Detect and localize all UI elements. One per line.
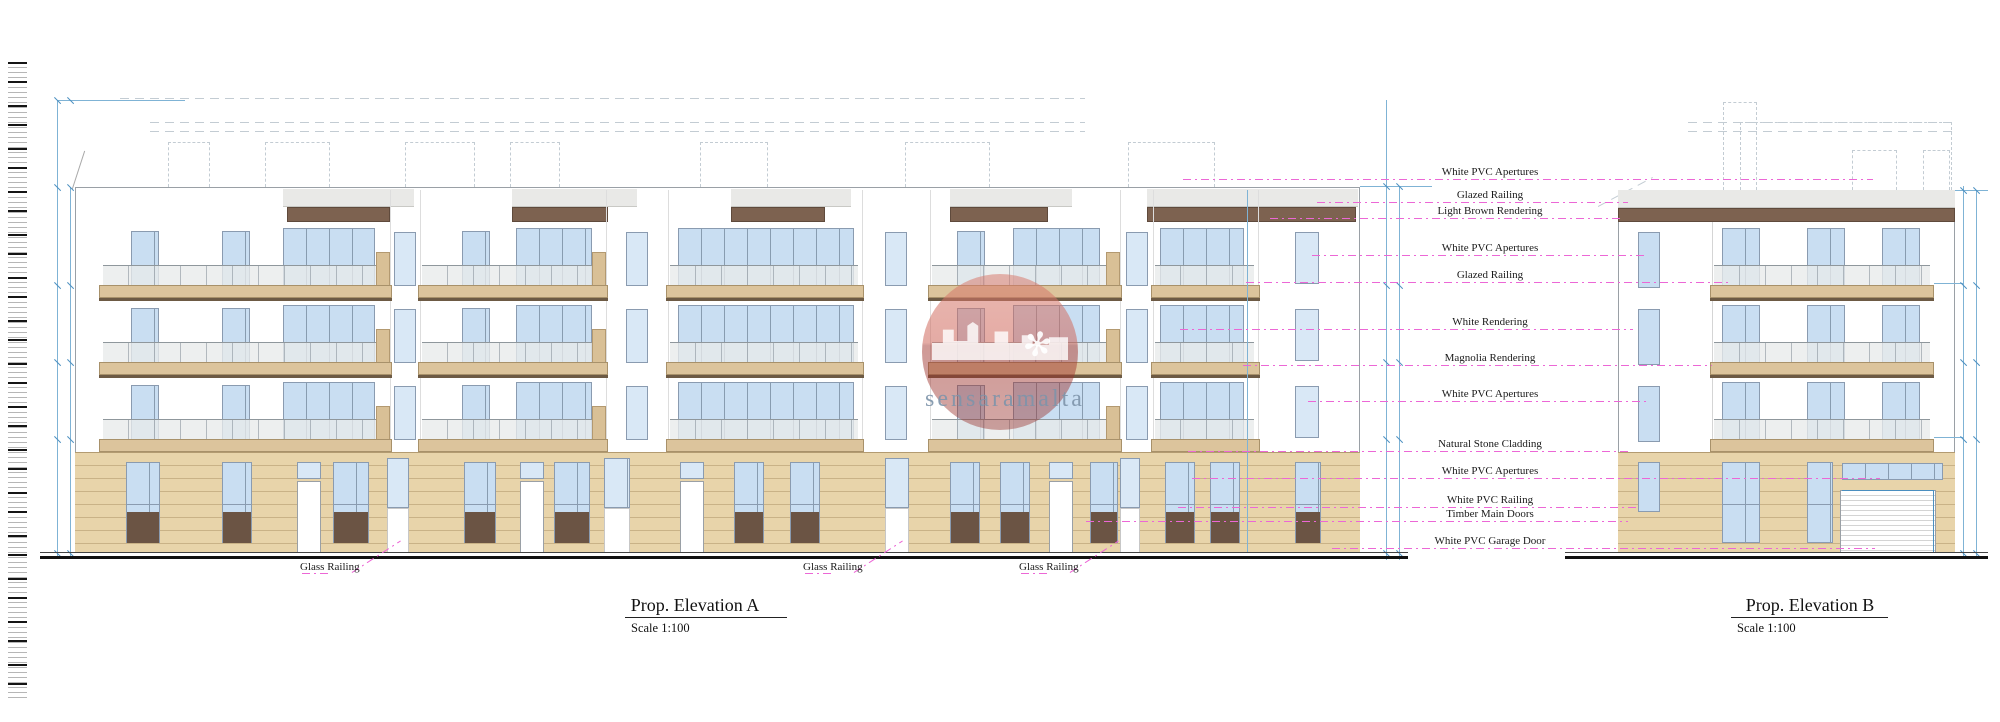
window-transom [950, 504, 980, 505]
annotation-label: White Rendering [1407, 316, 1573, 329]
leader-line [1317, 202, 1628, 203]
dimension-line-horizontal [1934, 283, 1963, 284]
window-stairwell [626, 232, 648, 286]
leader-line [1243, 365, 1712, 366]
stair-window [604, 458, 630, 508]
roof-structure-dashed-outline [905, 142, 990, 187]
leader-line [1188, 451, 1628, 452]
window-small [1638, 309, 1660, 365]
glass-railing-panel [1296, 512, 1320, 543]
window-transom [1295, 504, 1321, 505]
balcony-slab-shadow [99, 298, 392, 301]
window-transom [790, 504, 820, 505]
balcony-glazed-railing [422, 342, 592, 362]
balcony-slab-shadow [666, 298, 864, 301]
window-small [1295, 309, 1319, 361]
balcony-glazed-railing [103, 342, 376, 362]
parapet-gray-band [731, 189, 851, 207]
balcony-slab-shadow [418, 298, 608, 301]
balcony-glazed-railing [670, 419, 858, 439]
balcony-slab-shadow [666, 375, 864, 378]
elevation-b-scale: Scale 1:100 [1737, 621, 1857, 636]
garage-dimension-line [1933, 490, 1934, 553]
stair-panel [604, 508, 630, 553]
survey-ruler-strip [8, 62, 27, 702]
light-brown-rendering-band [287, 207, 390, 222]
annotation-label: White PVC Apertures [1407, 242, 1573, 255]
watermark-text: sensaramalta [925, 386, 1077, 410]
leader-line [1246, 282, 1730, 283]
parapet-gray-band [283, 189, 414, 207]
glass-railing-panel [1166, 512, 1194, 543]
annotation-label: Light Brown Rendering [1407, 205, 1573, 218]
dimension-line-horizontal [57, 100, 185, 101]
window-transom [1210, 504, 1240, 505]
timber-main-door [680, 481, 704, 553]
roof-structure-dashed-outline [168, 142, 210, 187]
garage-dimension-line [1842, 490, 1933, 491]
ground-window [1638, 462, 1660, 512]
balcony-slab [418, 439, 608, 452]
ground-line [1565, 552, 1988, 553]
facade-joint-line [862, 190, 863, 452]
glass-railing-panel [735, 512, 763, 543]
balcony-slab-shadow [1710, 298, 1934, 301]
window-transom [554, 504, 590, 505]
window-stairwell [1126, 386, 1148, 440]
watermark-pinwheel-icon: ✻ [1013, 322, 1062, 371]
stair-window [387, 458, 409, 508]
elevation-a-title: Prop. Elevation A [615, 595, 775, 615]
timber-main-door [297, 481, 321, 553]
window-small [1638, 232, 1660, 288]
balcony-glazed-railing [1714, 419, 1930, 439]
balcony-slab-shadow [1710, 375, 1934, 378]
leader-line [1308, 401, 1648, 402]
window-stairwell [885, 309, 907, 363]
light-brown-rendering-band [1618, 208, 1955, 222]
elevation-b-title: Prop. Elevation B [1727, 595, 1893, 615]
balcony-slab [99, 362, 392, 375]
window-transom [222, 504, 252, 505]
stair-panel [885, 508, 909, 553]
window-stairwell [885, 232, 907, 286]
glass-railing-panel [791, 512, 819, 543]
facade-joint-line [1258, 190, 1259, 452]
door-transom-window [297, 462, 321, 479]
stair-window [1120, 458, 1140, 508]
roof-structure-dashed-outline [1923, 150, 1950, 190]
facade-joint-line [420, 190, 421, 452]
annotation-label: Magnolia Rendering [1407, 352, 1573, 365]
leader-line [1332, 548, 1875, 549]
dimension-line-horizontal [1955, 190, 1988, 191]
elevation-a-scale: Scale 1:100 [631, 621, 751, 636]
balcony-slab [666, 439, 864, 452]
window-transom [1090, 504, 1118, 505]
parapet-gray-band [950, 189, 1072, 207]
ground-window [1722, 462, 1760, 543]
light-brown-rendering-band [731, 207, 825, 222]
facade-joint-line [668, 190, 669, 452]
annotation-label: White PVC Railing [1407, 494, 1573, 507]
annotation-label: Natural Stone Cladding [1407, 438, 1573, 451]
glass-railing-panel [223, 512, 251, 543]
leader-line [1183, 179, 1873, 180]
balcony-slab [1710, 439, 1934, 452]
window-stairwell [885, 386, 907, 440]
roof-structure-dashed-outline [700, 142, 768, 187]
glass-railing-panel [555, 512, 589, 543]
annotation-label: White PVC Apertures [1407, 388, 1573, 401]
ground-line [1565, 556, 1988, 559]
dimension-line-horizontal [1360, 186, 1432, 187]
dimension-line-vertical [1963, 186, 1964, 558]
roof-structure-dashed-outline [510, 142, 560, 187]
balcony-slab [1151, 362, 1260, 375]
parapet-gray-band [512, 189, 637, 207]
balcony-slab-shadow [1151, 298, 1260, 301]
glass-railing-panel [465, 512, 495, 543]
balcony-slab-shadow [99, 375, 392, 378]
roof-structure-dashed-outline [265, 142, 330, 187]
balcony-slab [1710, 362, 1934, 375]
window-small [1295, 386, 1319, 438]
glass-railing-panel [1001, 512, 1029, 543]
window-transom [1807, 504, 1833, 505]
glass-railing-panel [334, 512, 368, 543]
balcony-slab [928, 439, 1122, 452]
leader-line [1312, 255, 1645, 256]
balcony-slab [418, 285, 608, 298]
balcony-slab [666, 285, 864, 298]
balcony-slab [666, 362, 864, 375]
balcony-glazed-railing [103, 419, 376, 439]
annotation-label: Glazed Railing [1407, 269, 1573, 282]
window-transom [1000, 504, 1030, 505]
window-transom [1165, 504, 1195, 505]
facade-corner-line [72, 151, 85, 189]
balcony-glazed-railing [1714, 265, 1930, 285]
balcony-slab [1710, 285, 1934, 298]
dimension-line-vertical [1976, 190, 1977, 558]
leader-line [1086, 521, 1628, 522]
window-stairwell [1126, 232, 1148, 286]
balcony-glazed-railing [1155, 342, 1254, 362]
glass-railing-panel [951, 512, 979, 543]
glass-railing-label: Glass Railing [803, 561, 861, 574]
dimension-line-vertical [1399, 186, 1400, 560]
balcony-slab-shadow [418, 375, 608, 378]
annotation-label: White PVC Garage Door [1407, 535, 1573, 548]
facade-joint-line [606, 190, 607, 452]
facade-joint-line [390, 190, 391, 452]
annotation-label: Timber Main Doors [1407, 508, 1573, 521]
roof-structure-dashed-outline [1852, 150, 1897, 190]
facade-joint-line [1120, 190, 1121, 452]
window-transom [464, 504, 496, 505]
window-stairwell [394, 309, 416, 363]
leader-line [1270, 218, 1620, 219]
window-stairwell [394, 232, 416, 286]
facade-joint-line [1712, 222, 1713, 452]
roof-dashed-line [150, 131, 1085, 132]
title-underline [1731, 617, 1888, 618]
window-small [1638, 386, 1660, 442]
annotation-label: White PVC Apertures [1407, 166, 1573, 179]
glass-railing-label: Glass Railing [1019, 561, 1077, 574]
window-transom [126, 504, 160, 505]
balcony-slab [418, 362, 608, 375]
balcony-glazed-railing [670, 265, 858, 285]
timber-main-door [1049, 481, 1073, 553]
annotation-label: White PVC Apertures [1407, 465, 1573, 478]
light-brown-rendering-band [512, 207, 608, 222]
dimension-line-vertical [57, 100, 58, 558]
stair-panel [1120, 508, 1140, 553]
door-transom-window [520, 462, 544, 479]
roof-dashed-line [120, 98, 1085, 99]
balcony-glazed-railing [103, 265, 376, 285]
glass-railing-panel [1211, 512, 1239, 543]
roof-structure-dashed-outline [405, 142, 475, 187]
balcony-glazed-railing [1714, 342, 1930, 362]
balcony-glazed-railing [670, 342, 858, 362]
parapet-gray-band [1618, 190, 1955, 208]
balcony-slab [99, 439, 392, 452]
ground-line [40, 556, 1408, 559]
leader-line [1192, 478, 1880, 479]
balcony-slab [99, 285, 392, 298]
window-transom [333, 504, 369, 505]
facade-joint-line [1153, 190, 1154, 452]
dimension-line-vertical [70, 187, 71, 558]
window-stairwell [394, 386, 416, 440]
glass-railing-label: Glass Railing [300, 561, 358, 574]
window-stairwell [1126, 309, 1148, 363]
dimension-line-vertical [1247, 190, 1248, 553]
leader-line [1180, 329, 1633, 330]
ground-window [1807, 462, 1833, 543]
balcony-glazed-railing [422, 419, 592, 439]
parapet-gray-band [1147, 189, 1358, 207]
white-pvc-garage-door [1840, 490, 1936, 553]
balcony-glazed-railing [422, 265, 592, 285]
window-small [1295, 232, 1319, 284]
annotation-label: Glazed Railing [1407, 189, 1573, 202]
door-transom-window [1049, 462, 1073, 479]
elevation-drawing-canvas: ✻sensaramaltaWhite PVC AperturesGlazed R… [0, 0, 2000, 722]
timber-main-door [520, 481, 544, 553]
glass-railing-panel [1091, 512, 1117, 543]
title-underline [625, 617, 787, 618]
balcony-glazed-railing [1155, 419, 1254, 439]
glass-railing-panel [127, 512, 159, 543]
light-brown-rendering-band [1147, 207, 1356, 222]
window-transom [1722, 504, 1760, 505]
balcony-glazed-railing [1155, 265, 1254, 285]
dimension-line-horizontal [1934, 437, 1963, 438]
window-stairwell [626, 309, 648, 363]
balcony-slab [1151, 285, 1260, 298]
ground-line [40, 552, 1408, 553]
window-stairwell [626, 386, 648, 440]
balcony-slab-shadow [1151, 375, 1260, 378]
roof-dashed-line [150, 122, 1085, 123]
stair-window [885, 458, 909, 508]
light-brown-rendering-band [950, 207, 1048, 222]
door-transom-window [680, 462, 704, 479]
window-transom [734, 504, 764, 505]
